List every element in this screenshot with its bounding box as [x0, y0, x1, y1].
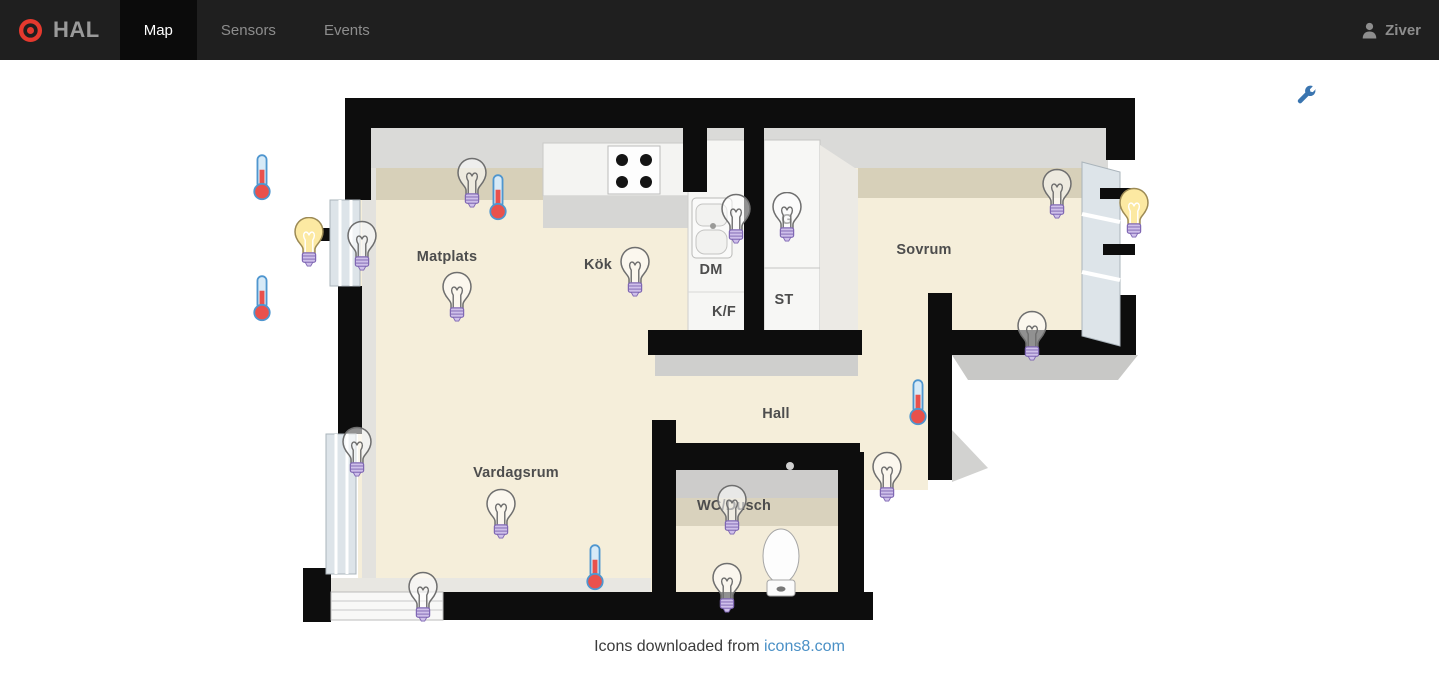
icons-credit: Icons downloaded from icons8.com: [0, 638, 1439, 656]
nav-tabs: Map Sensors Events: [120, 0, 394, 60]
light-bulb-icon-kok-off[interactable]: [618, 246, 652, 299]
light-bulb-icon-wc-dusch-off[interactable]: [715, 484, 749, 537]
light-bulb-icon-vardagsrum-window-off[interactable]: [340, 426, 374, 479]
icons-credit-text: Icons downloaded from: [594, 638, 759, 655]
settings-wrench-icon[interactable]: [1296, 84, 1318, 106]
light-bulb-icon-kok-sink-off[interactable]: [719, 193, 753, 246]
thermometer-icon-west-south[interactable]: [252, 273, 272, 323]
room-label-kok: Kök: [584, 257, 612, 273]
thermometer-icon-west-north[interactable]: [252, 152, 272, 202]
hal-target-logo-icon: [17, 17, 44, 44]
light-bulb-icon-matplats-center-off[interactable]: [440, 271, 474, 324]
light-bulb-icon-balcony-east-on[interactable]: [1117, 187, 1151, 240]
light-bulb-icon-sovrum-north-off[interactable]: [1040, 168, 1074, 221]
tab-map[interactable]: Map: [120, 0, 197, 60]
brand-name: HAL: [53, 17, 100, 43]
light-bulb-icon-hall-off[interactable]: [870, 451, 904, 504]
light-bulb-icon-matplats-west-off[interactable]: [345, 220, 379, 273]
thermometer-icon-vardagsrum[interactable]: [585, 542, 605, 592]
room-label-st: ST: [775, 292, 794, 308]
light-bulb-icon-closet-g-off[interactable]: [770, 191, 804, 244]
room-label-sovrum: Sovrum: [896, 242, 951, 258]
brand[interactable]: HAL: [0, 0, 120, 60]
floor-map: Icons downloaded from icons8.com Matplat…: [0, 60, 1439, 675]
light-bulb-icon-wc-dusch-south-off[interactable]: [710, 562, 744, 615]
floor-plan-drawing: [0, 60, 1439, 635]
navbar: HAL Map Sensors Events Ziver: [0, 0, 1439, 60]
thermometer-icon-hall[interactable]: [908, 377, 928, 427]
light-bulb-icon-sovrum-south-off[interactable]: [1015, 310, 1049, 363]
room-label-hall: Hall: [762, 406, 789, 422]
light-bulb-icon-balcony-west-on[interactable]: [292, 216, 326, 269]
room-label-matplats: Matplats: [417, 249, 477, 265]
room-label-vardagsrum: Vardagsrum: [473, 465, 559, 481]
thermometer-icon-matplats[interactable]: [488, 172, 508, 222]
icons8-link[interactable]: icons8.com: [764, 638, 845, 655]
light-bulb-icon-matplats-north-off[interactable]: [455, 157, 489, 210]
room-label-dm: DM: [700, 262, 723, 278]
user-menu[interactable]: Ziver: [1343, 0, 1439, 60]
light-bulb-icon-vardagsrum-center-off[interactable]: [484, 488, 518, 541]
light-bulb-icon-vardagsrum-south-off[interactable]: [406, 571, 440, 624]
user-icon: [1361, 22, 1378, 39]
room-label-kf: K/F: [712, 304, 736, 320]
user-name: Ziver: [1385, 22, 1421, 39]
tab-sensors[interactable]: Sensors: [197, 0, 300, 60]
tab-events[interactable]: Events: [300, 0, 394, 60]
